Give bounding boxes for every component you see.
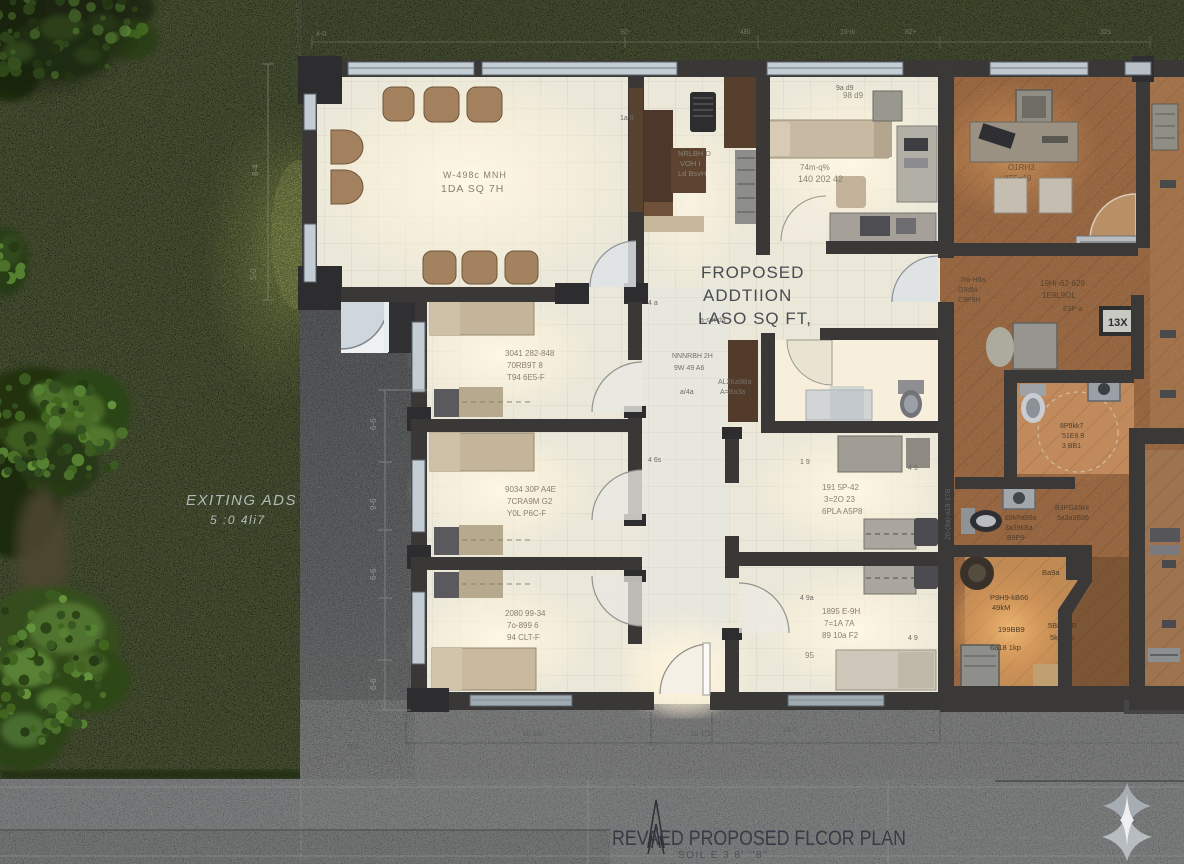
svg-text:49kM: 49kM [992, 603, 1010, 612]
svg-text:1895 E-9H: 1895 E-9H [822, 607, 860, 616]
svg-text:5a3a9B86: 5a3a9B86 [1057, 515, 1089, 522]
svg-text:O1RH3: O1RH3 [1008, 163, 1035, 172]
svg-text:4 9: 4 9 [908, 635, 918, 642]
svg-text:13 7: 13 7 [782, 725, 797, 734]
svg-text:6-6: 6-6 [369, 678, 378, 690]
svg-text:8P9kk7: 8P9kk7 [1060, 423, 1083, 430]
svg-text:89 10a F2: 89 10a F2 [822, 631, 859, 640]
svg-text:82+: 82+ [905, 29, 917, 36]
svg-text:E3P-a: E3P-a [1063, 306, 1083, 313]
svg-text:19Hr-62-629: 19Hr-62-629 [1040, 279, 1085, 288]
svg-text:7ra-H6a: 7ra-H6a [960, 277, 985, 284]
svg-text:LASO SQ FT,: LASO SQ FT, [698, 309, 812, 328]
svg-text:13X: 13X [1108, 317, 1128, 329]
svg-text:4-0: 4-0 [316, 31, 326, 38]
svg-text:95: 95 [805, 651, 814, 660]
svg-text:5 :0 4li7: 5 :0 4li7 [210, 513, 266, 527]
svg-text:1E9L9OL: 1E9L9OL [1042, 291, 1076, 300]
svg-text:B3PGA9kk: B3PGA9kk [1055, 505, 1090, 512]
svg-text:94 CLT-F: 94 CLT-F [507, 633, 540, 642]
svg-text:8-4: 8-4 [251, 164, 260, 176]
svg-text:9W 49 A6: 9W 49 A6 [674, 365, 704, 372]
svg-text:ADDTIION: ADDTIION [703, 286, 792, 305]
svg-text:Ld BsvH: Ld BsvH [678, 169, 706, 178]
svg-text:3=2O 23: 3=2O 23 [824, 495, 855, 504]
svg-text:16 1/2: 16 1/2 [522, 729, 543, 738]
svg-text:9a d9: 9a d9 [836, 85, 854, 92]
svg-text:7=1A 7A: 7=1A 7A [824, 619, 855, 628]
svg-text:0-8: 0-8 [348, 742, 359, 751]
svg-text:6PLA A5P8: 6PLA A5P8 [822, 507, 863, 516]
svg-text:70RB9T 8: 70RB9T 8 [507, 361, 543, 370]
svg-text:FROPOSED: FROPOSED [701, 263, 804, 282]
svg-text:C9P9H: C9P9H [958, 297, 981, 304]
svg-text:74m-q%: 74m-q% [800, 163, 830, 172]
svg-text:92-: 92- [620, 29, 631, 36]
svg-text:3041 282-848: 3041 282-848 [505, 349, 555, 358]
svg-text:REVAED PROPOSED FLCOR PLAN: REVAED PROPOSED FLCOR PLAN [612, 826, 906, 850]
svg-text:1DA SQ 7H: 1DA SQ 7H [441, 183, 504, 195]
svg-text:89kPa99a: 89kPa99a [1005, 515, 1037, 522]
svg-text:9-6: 9-6 [369, 498, 378, 510]
svg-text:4 9: 4 9 [908, 465, 918, 472]
svg-text:5-0: 5-0 [249, 268, 258, 280]
svg-text:1a 9: 1a 9 [620, 115, 634, 122]
svg-text:VOH I: VOH I [680, 159, 700, 168]
svg-text:98 d9: 98 d9 [843, 91, 864, 100]
svg-text:P9H9-kB66: P9H9-kB66 [990, 593, 1028, 602]
svg-text:1 9: 1 9 [800, 459, 810, 466]
svg-text:7CRA9M G2: 7CRA9M G2 [507, 497, 553, 506]
svg-text:T94 6E5-F: T94 6E5-F [507, 373, 545, 382]
svg-text:3a39kBa: 3a39kBa [1005, 525, 1033, 532]
svg-text:W-498c MNH: W-498c MNH [443, 170, 507, 180]
svg-text:191 5P-42: 191 5P-42 [822, 483, 859, 492]
svg-text:4Bl: 4Bl [740, 29, 751, 36]
svg-text:9034 30P A4E: 9034 30P A4E [505, 485, 556, 494]
svg-text:19-lu: 19-lu [840, 29, 856, 36]
svg-text:10 1/2: 10 1/2 [690, 729, 711, 738]
svg-text:AL2Ka9Ba: AL2Ka9Ba [718, 379, 752, 386]
svg-text:A=Ba3a: A=Ba3a [720, 389, 745, 396]
svg-text:4 6s: 4 6s [648, 457, 662, 464]
svg-text:6-6: 6-6 [369, 568, 378, 580]
svg-text:3 BB1: 3 BB1 [1062, 443, 1081, 450]
svg-text:Ba9a: Ba9a [1042, 568, 1060, 577]
svg-text:Y0L P6C-F: Y0L P6C-F [507, 509, 546, 518]
svg-text:a/4a: a/4a [680, 389, 694, 396]
svg-text:6a18 1kp: 6a18 1kp [990, 643, 1021, 652]
svg-text:7o-899 6: 7o-899 6 [507, 621, 539, 630]
svg-text:4 a: 4 a [648, 300, 658, 307]
svg-text:B9P9-: B9P9- [1007, 535, 1027, 542]
svg-text:140 202 42: 140 202 42 [798, 174, 843, 184]
svg-text:51E8 9: 51E8 9 [1062, 433, 1084, 440]
svg-text:20-(6a)-a19-17B: 20-(6a)-a19-17B [945, 488, 952, 540]
svg-text:NRLBH D: NRLBH D [678, 149, 712, 158]
svg-text:4 9a: 4 9a [800, 595, 814, 602]
svg-text:G9dM: G9dM [958, 287, 977, 294]
svg-text:199BB9: 199BB9 [998, 625, 1025, 634]
svg-text:6-6: 6-6 [369, 418, 378, 430]
svg-text:EXITING ADS: EXITING ADS [186, 492, 297, 509]
svg-text:2080 99-34: 2080 99-34 [505, 609, 546, 618]
svg-text:NNNRBH 2H: NNNRBH 2H [672, 353, 713, 360]
svg-text:32s: 32s [1100, 29, 1112, 36]
svg-text:SOIL E 3 8' ''8": SOIL E 3 8' ''8" [678, 850, 768, 861]
